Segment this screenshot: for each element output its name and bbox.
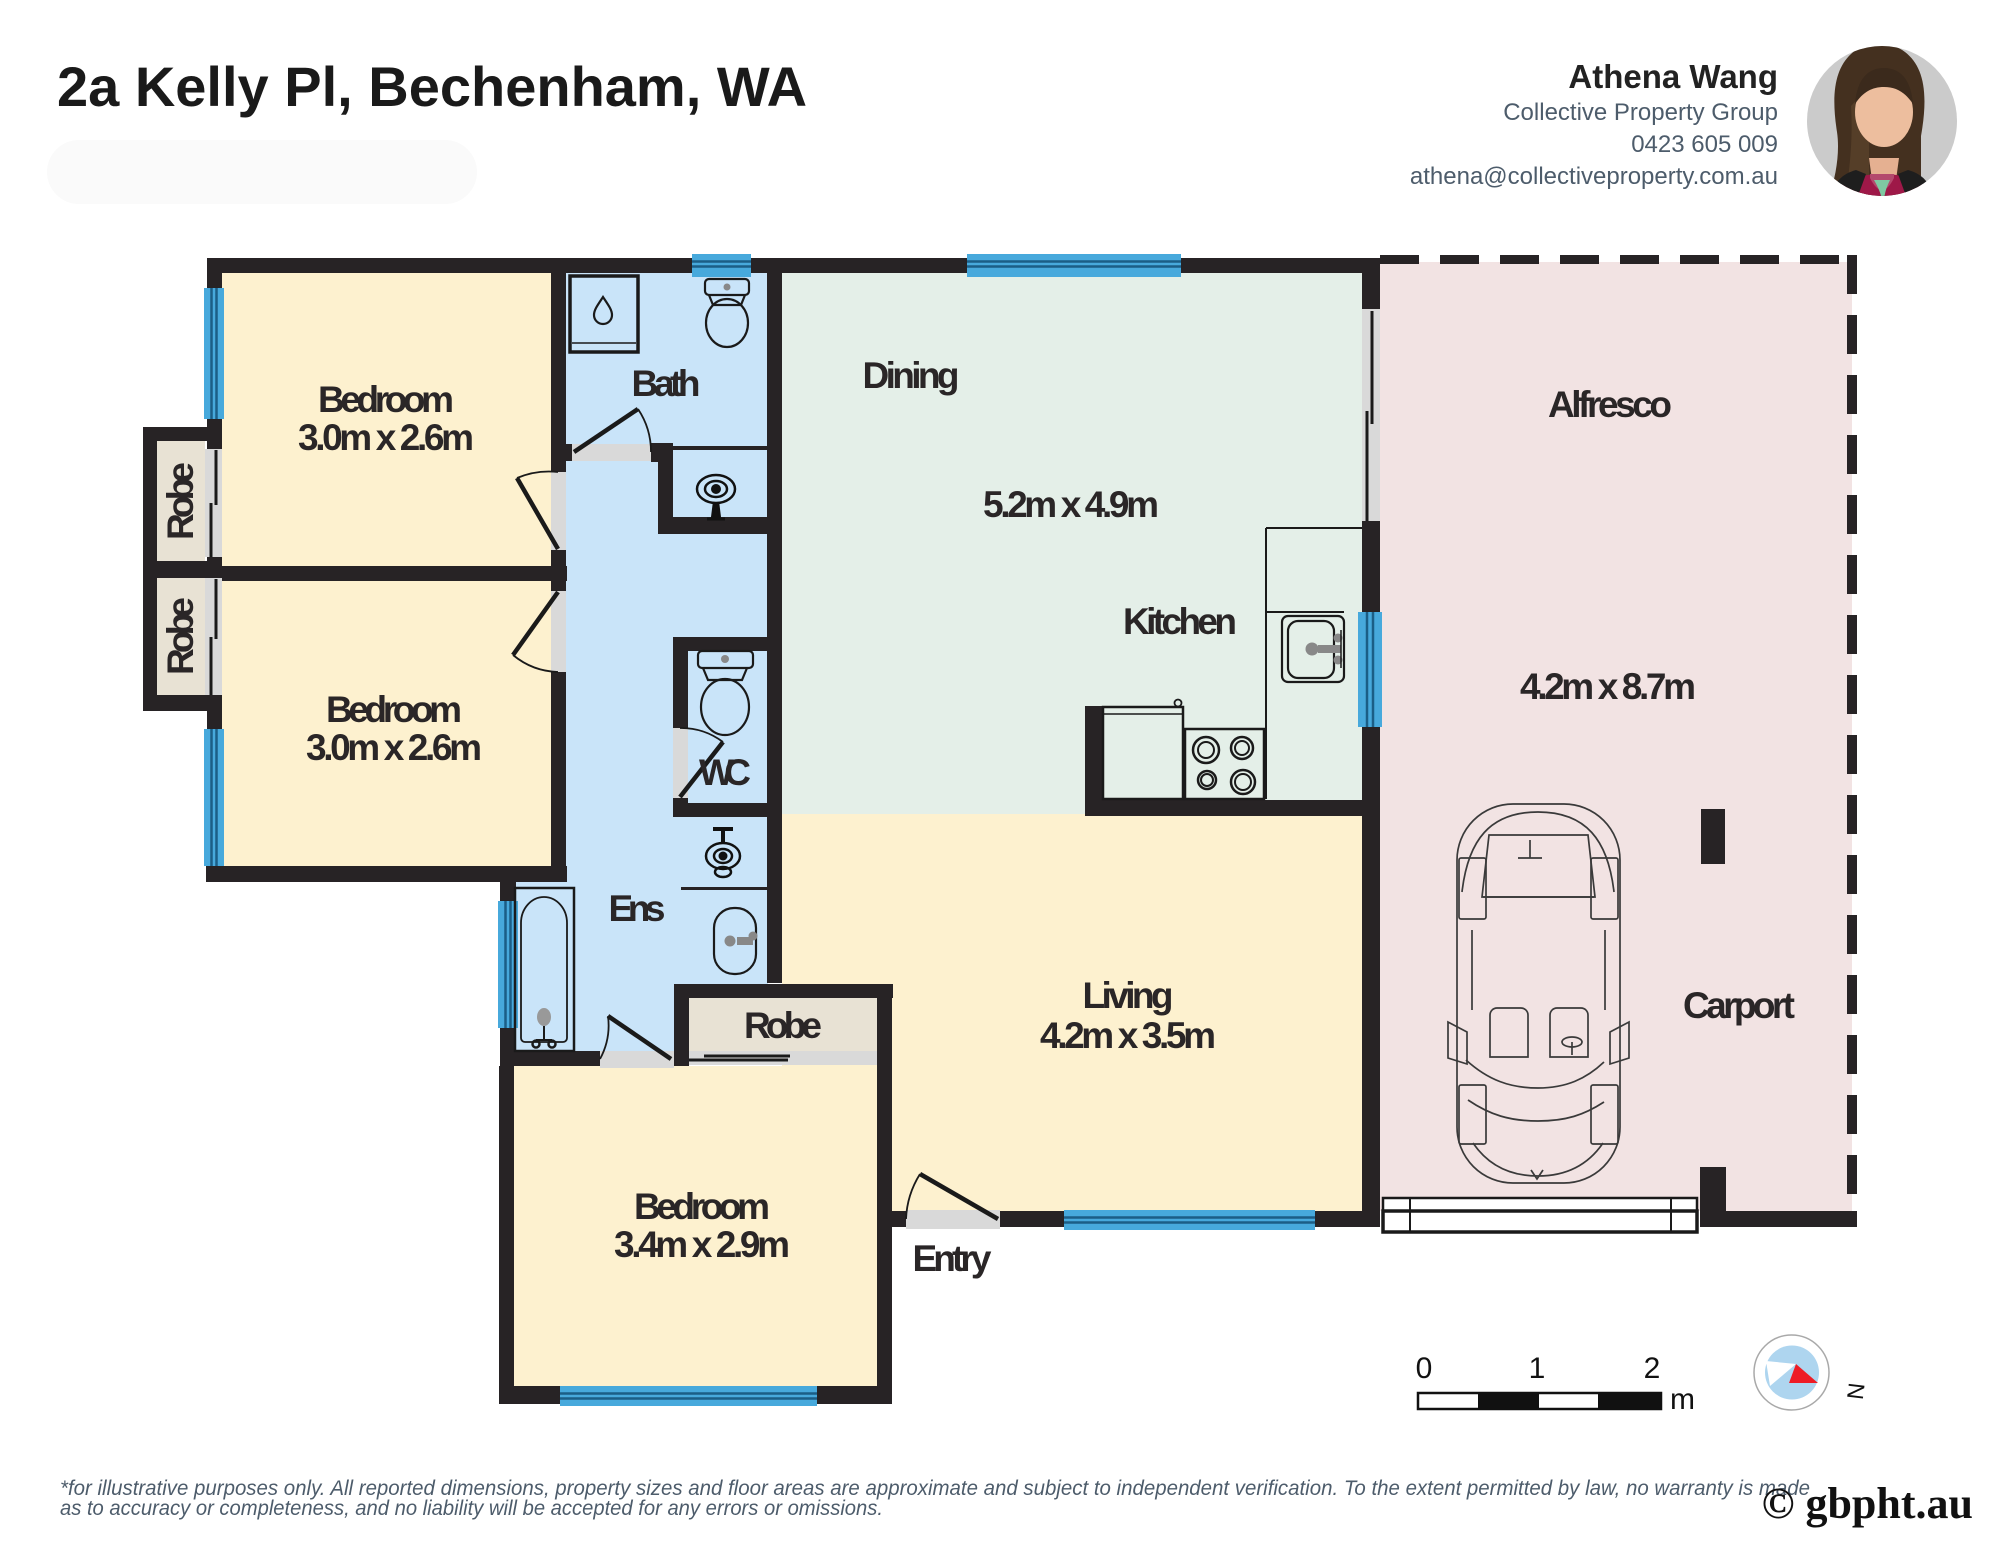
svg-text:Bedroom: Bedroom [326, 689, 462, 730]
svg-text:Living: Living [1083, 975, 1174, 1016]
svg-text:Robe: Robe [744, 1005, 822, 1046]
svg-text:m: m [1670, 1383, 1695, 1416]
svg-text:3.4m x 2.9m: 3.4m x 2.9m [614, 1224, 790, 1265]
svg-text:4.2m x 3.5m: 4.2m x 3.5m [1040, 1015, 1216, 1056]
svg-text:Robe: Robe [160, 462, 201, 540]
svg-text:0: 0 [1416, 1352, 1433, 1385]
svg-text:2a Kelly Pl, Bechenham, WA: 2a Kelly Pl, Bechenham, WA [57, 55, 807, 118]
svg-text:Entry: Entry [913, 1238, 992, 1279]
svg-text:Carport: Carport [1683, 985, 1795, 1026]
svg-text:Robe: Robe [160, 597, 201, 675]
svg-text:Bedroom: Bedroom [318, 379, 454, 420]
svg-text:Collective Property Group: Collective Property Group [1503, 99, 1778, 126]
svg-text:Bath: Bath [632, 363, 701, 404]
svg-text:Ens: Ens [609, 888, 666, 929]
svg-text:Alfresco: Alfresco [1548, 384, 1672, 425]
svg-text:© gbpht.au: © gbpht.au [1762, 1479, 1973, 1528]
svg-text:athena@collectiveproperty.com.: athena@collectiveproperty.com.au [1410, 163, 1778, 190]
svg-text:Dining: Dining [863, 355, 960, 396]
svg-text:3.0m x 2.6m: 3.0m x 2.6m [298, 417, 474, 458]
svg-text:2: 2 [1644, 1352, 1661, 1385]
svg-text:0423 605 009: 0423 605 009 [1631, 131, 1778, 158]
svg-text:as to accuracy or completeness: as to accuracy or completeness, and no l… [60, 1497, 883, 1520]
svg-text:Athena Wang: Athena Wang [1568, 58, 1778, 95]
svg-text:WC: WC [699, 752, 751, 793]
svg-text:N: N [1842, 1381, 1870, 1401]
svg-text:3.0m x 2.6m: 3.0m x 2.6m [306, 727, 482, 768]
svg-text:Kitchen: Kitchen [1123, 601, 1237, 642]
svg-text:Bedroom: Bedroom [634, 1186, 770, 1227]
svg-text:4.2m x 8.7m: 4.2m x 8.7m [1520, 666, 1696, 707]
svg-text:5.2m x 4.9m: 5.2m x 4.9m [983, 484, 1159, 525]
svg-text:1: 1 [1529, 1352, 1546, 1385]
